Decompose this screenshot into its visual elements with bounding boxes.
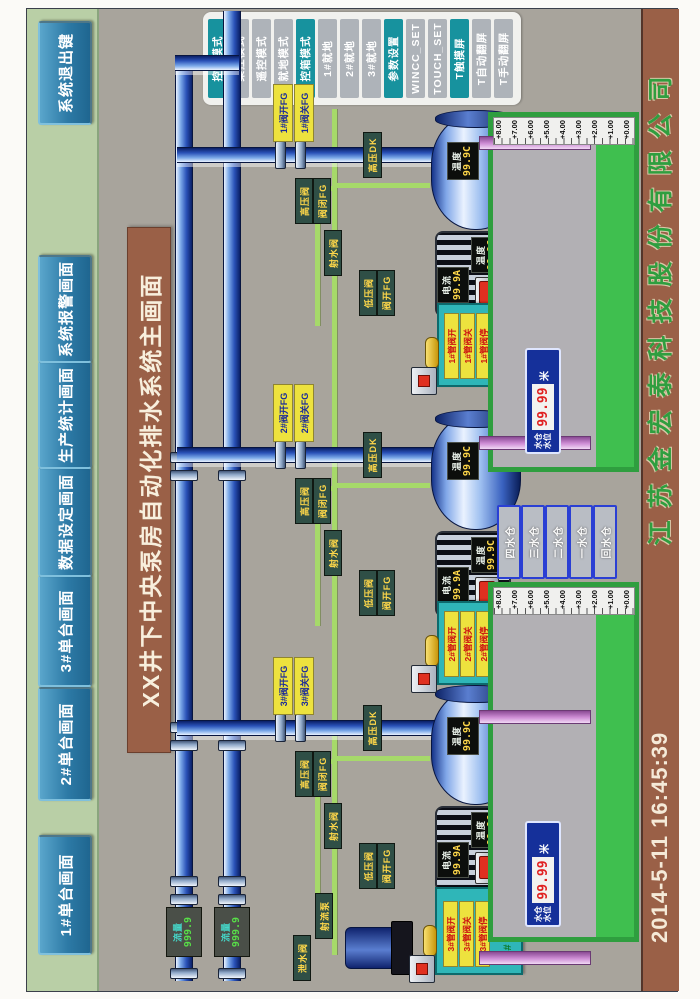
pump3-hp-valve-tag: 高压阀 xyxy=(295,751,313,797)
sump-select-button-4[interactable]: 四水仓 xyxy=(497,505,521,579)
main1-flange xyxy=(170,894,198,905)
pump2-jet-valve-tag: 射水阀 xyxy=(324,530,342,576)
hmi-screen: 1#单台画面 2#单台画面 3#单台画面 数据设定画面 生产统计画面 系统报警画… xyxy=(26,8,678,992)
main2-end-flange xyxy=(218,968,246,979)
datetime-text: 2014-5-11 16:45:39 xyxy=(645,613,675,943)
nav-button-data-setting[interactable]: 数据设定画面 xyxy=(38,467,92,577)
pump2-valve-actuator-icon xyxy=(411,665,437,693)
pump3-barrel-temp: 温度 99.9C xyxy=(447,717,479,755)
mode-button-touchscreen[interactable]: T触摸屏 xyxy=(450,19,469,98)
pump2-discharge-flange xyxy=(275,441,286,469)
pump3-valve-close-feedback: 3#阀关FG xyxy=(294,657,314,715)
pump3-valve-actuator-icon xyxy=(409,955,435,983)
pump3-discharge-pipe xyxy=(177,720,439,736)
left-sump-water xyxy=(596,587,634,937)
drain-valve-tag: 泄水阀 xyxy=(293,935,311,981)
pump1-hp-valve-tag: 高压阀 xyxy=(295,178,313,224)
main2-flange xyxy=(218,470,246,481)
level-display-value: 99.99 xyxy=(532,384,554,430)
pump2-hp-valve-tag: 高压阀 xyxy=(295,478,313,524)
mode-button-local-3[interactable]: 3#就地 xyxy=(362,19,381,98)
main1-flange xyxy=(170,470,198,481)
nav-button-system-alarm[interactable]: 系统报警画面 xyxy=(38,255,92,363)
main1-flange xyxy=(170,876,198,887)
pump2-pipe-valve-open-button[interactable]: 2#管阀开 xyxy=(444,611,459,677)
main2-flange xyxy=(218,876,246,887)
level-display-unit: 米 xyxy=(536,844,551,854)
pump2-pipe-valve-close-button[interactable]: 2#管阀关 xyxy=(460,611,475,677)
flow-value: 999.9 xyxy=(231,917,242,947)
pump1-yellow-fitting xyxy=(425,337,439,369)
pump2-discharge-pipe xyxy=(177,447,439,463)
flow-value: 999.9 xyxy=(183,917,194,947)
mode-button-local-1[interactable]: 1#就地 xyxy=(318,19,337,98)
pump1-discharge-flange xyxy=(275,141,286,169)
page-title: XX井下中央泵房自动化排水系统主画面 xyxy=(127,227,171,753)
pump3-hp-valve-state: 阀闭FG xyxy=(313,751,331,797)
jet-down-line-2 xyxy=(332,483,430,488)
pump3-suction-pipe xyxy=(479,710,591,724)
jet-down-line-1 xyxy=(332,183,430,188)
main1-end-flange xyxy=(170,968,198,979)
mode-button-local-2[interactable]: 2#就地 xyxy=(340,19,359,98)
pump3-jet-valve-tag: 射水阀 xyxy=(324,803,342,849)
level-display-label: 水仓 xyxy=(534,433,543,449)
pump1-hp-valve-state: 阀闭FG xyxy=(313,178,331,224)
pump1-pipe-valve-close-button[interactable]: 1#管阀关 xyxy=(460,313,475,379)
mode-button-wincc-set[interactable]: WINCC_SET xyxy=(406,19,425,98)
pump3-hp-dk-tag: 高压DK xyxy=(363,705,382,751)
spare-suction-pipe xyxy=(479,951,591,965)
right-sump-water xyxy=(596,117,634,467)
right-sump-level-scale: +8.00 +7.00 +6.00 +5.00 +4.00 +3.00 +2.0… xyxy=(493,117,635,145)
pump1-valve-actuator-icon xyxy=(411,367,437,395)
pump1-lp-valve-tag: 低压阀 xyxy=(359,270,377,316)
pump2-valve-close-feedback: 2#阀关FG xyxy=(294,384,314,442)
pump3-pipe-valve-close-button[interactable]: 3#管阀关 xyxy=(459,901,474,967)
main2-flange xyxy=(218,894,246,905)
flow-meter-main1: 流量 999.9 xyxy=(166,907,202,957)
pump3-pipe-valve-open-button[interactable]: 3#管阀开 xyxy=(443,901,458,967)
mode-button-remote[interactable]: 遥控模式 xyxy=(252,19,271,98)
nav-button-pump2-screen[interactable]: 2#单台画面 xyxy=(38,687,92,801)
nav-button-production-stats[interactable]: 生产统计画面 xyxy=(38,361,92,469)
pump1-motor-current: 电流 99.9A xyxy=(437,267,469,303)
pump2-lp-valve-state: 阀开FG xyxy=(377,570,395,616)
level-display-unit: 米 xyxy=(536,371,551,381)
pump3-discharge-flange xyxy=(275,714,286,742)
pump2-motor-current: 电流 99.9A xyxy=(437,567,469,603)
level-display-value: 99.99 xyxy=(532,857,554,903)
mode-button-auto-flip[interactable]: T自动翻屏 xyxy=(472,19,491,98)
pump3-lp-valve-state: 阀开FG xyxy=(377,843,395,889)
pump1-valve-open-feedback: 1#阀开FG xyxy=(273,84,293,142)
pump1-discharge-pipe xyxy=(177,147,439,163)
pump2-valve-open-feedback: 2#阀开FG xyxy=(273,384,293,442)
pump1-lp-valve-state: 阀开FG xyxy=(377,270,395,316)
pump2-lp-valve-tag: 低压阀 xyxy=(359,570,377,616)
pump2-barrel-temp: 温度 99.9C xyxy=(447,442,479,480)
level-display-label: 水位 xyxy=(543,906,552,922)
pump1-discharge-flange xyxy=(295,141,306,169)
main2-flange xyxy=(218,740,246,751)
mains-connector-pipe xyxy=(175,55,239,71)
flow-label: 流量 xyxy=(174,922,184,942)
jet-pump-body xyxy=(345,927,393,969)
pump1-pipe-valve-open-button[interactable]: 1#管阀开 xyxy=(444,313,459,379)
flow-label: 流量 xyxy=(222,922,232,942)
level-display-label: 水仓 xyxy=(534,906,543,922)
jet-down-line-3 xyxy=(332,756,430,761)
level-display-label: 水位 xyxy=(543,433,552,449)
pump3-valve-open-feedback: 3#阀开FG xyxy=(273,657,293,715)
sump-select-button-1[interactable]: 一水仓 xyxy=(569,505,593,579)
nav-button-system-exit[interactable]: 系统退出键 xyxy=(38,21,92,125)
left-sump xyxy=(488,582,639,942)
jet-pump-tag: 射流泵 xyxy=(315,893,333,939)
sump-select-button-3[interactable]: 三水仓 xyxy=(521,505,545,579)
pump2-hp-dk-tag: 高压DK xyxy=(363,432,382,478)
rotated-hmi-stage: 1#单台画面 2#单台画面 3#单台画面 数据设定画面 生产统计画面 系统报警画… xyxy=(0,0,700,999)
mode-button-manual-flip[interactable]: T手动翻屏 xyxy=(494,19,513,98)
mode-button-touch-set[interactable]: TOUCH_SET xyxy=(428,19,447,98)
right-sump-level-display: 水仓 水位 99.99 米 xyxy=(525,348,561,454)
flow-meter-main2: 流量 999.9 xyxy=(214,907,250,957)
pump1-barrel-temp: 温度 99.9C xyxy=(447,142,479,180)
left-sump-level-scale: +8.00 +7.00 +6.00 +5.00 +4.00 +3.00 +2.0… xyxy=(493,587,635,615)
pump1-valve-close-feedback: 1#阀关FG xyxy=(294,84,314,142)
pump3-lp-valve-tag: 低压阀 xyxy=(359,843,377,889)
pump1-jet-valve-tag: 射水阀 xyxy=(324,230,342,276)
pump3-motor-current: 电流 99.9A xyxy=(437,842,469,878)
pump1-hp-dk-tag: 高压DK xyxy=(363,132,382,178)
left-sump-level-display: 水仓 水位 99.99 米 xyxy=(525,821,561,927)
mode-button-param-set[interactable]: 参数设置 xyxy=(384,19,403,98)
discharge-main-1 xyxy=(175,55,193,981)
sump-select-button-return[interactable]: 回水仓 xyxy=(593,505,617,579)
pump3-yellow-fitting xyxy=(423,925,437,957)
main1-flange xyxy=(170,740,198,751)
pump2-yellow-fitting xyxy=(425,635,439,667)
pump2-hp-valve-state: 阀闭FG xyxy=(313,478,331,524)
right-sump xyxy=(488,112,639,472)
pump3-discharge-flange xyxy=(295,714,306,742)
nav-button-pump3-screen[interactable]: 3#单台画面 xyxy=(38,575,92,687)
nav-button-pump1-screen[interactable]: 1#单台画面 xyxy=(38,835,92,955)
company-name: 江苏金宏泰科技股份有限公司 xyxy=(642,17,676,593)
sump-select-button-2[interactable]: 二水仓 xyxy=(545,505,569,579)
pump2-discharge-flange xyxy=(295,441,306,469)
